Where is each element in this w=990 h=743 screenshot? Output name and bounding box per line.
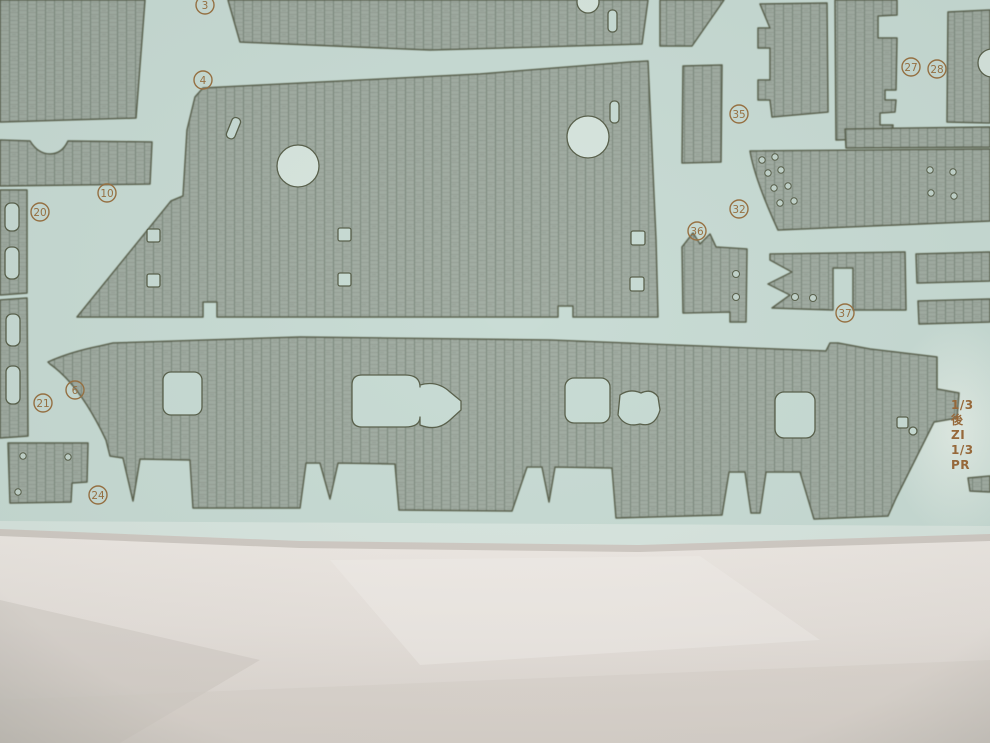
callout-number-4: 4 xyxy=(200,75,207,87)
callout-number-28: 28 xyxy=(930,64,943,76)
callout-number-35: 35 xyxy=(732,109,745,121)
piece-strip-mid-right-1 xyxy=(916,252,990,283)
piece-35-rect xyxy=(682,65,722,163)
callout-number-27: 27 xyxy=(904,62,917,74)
sheet-edge-text-line: 1/3 xyxy=(951,398,990,413)
callout-number-24: 24 xyxy=(91,490,105,502)
callout-number-36: 36 xyxy=(690,226,704,238)
piece-strip-mid-right-2 xyxy=(918,299,990,324)
callout-number-10: 10 xyxy=(100,188,113,200)
callout-number-3: 3 xyxy=(202,0,209,12)
piece-fragment-bottom-right xyxy=(968,476,990,492)
piece-strip-top-right xyxy=(845,127,990,148)
callout-number-21: 21 xyxy=(36,398,49,410)
callout-number-37: 37 xyxy=(838,308,851,320)
photo-decal-sheet: 34102027283532363762124 1/3 後 ZI 1/3 PR xyxy=(0,0,990,743)
callout-number-20: 20 xyxy=(33,207,46,219)
sheet-edge-text: 1/3 後 ZI 1/3 PR xyxy=(951,398,990,473)
piece-notched-left xyxy=(0,140,152,186)
callout-number-6: 6 xyxy=(72,385,79,397)
piece-top-left xyxy=(0,0,145,122)
sheet-edge-text-line: 1/3 xyxy=(951,443,990,458)
sheet-edge-text-line: PR xyxy=(951,458,990,473)
decal-sheet-illustration: 34102027283532363762124 xyxy=(0,0,990,743)
sheet-edge-text-line: 後 xyxy=(951,413,990,428)
sheet-edge-text-line: ZI xyxy=(951,428,990,443)
callout-number-32: 32 xyxy=(732,204,745,216)
piece-32-riveted xyxy=(750,149,990,230)
